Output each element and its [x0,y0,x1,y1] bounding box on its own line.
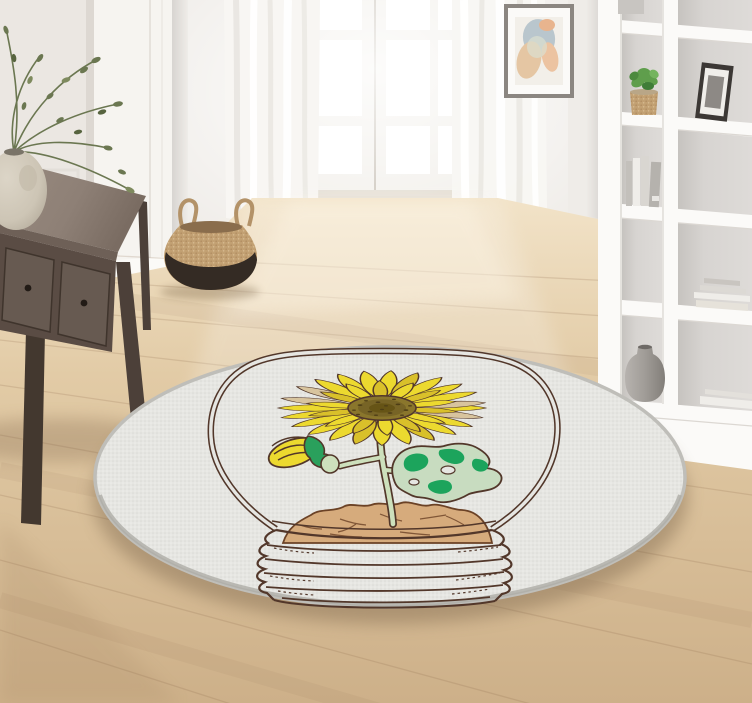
drawer-knob-right [81,300,88,307]
room-scene [0,0,752,703]
shelf-books-vertical [626,156,661,207]
basket-opening [180,221,242,233]
vase-mouth [4,148,24,155]
curtain-left [224,0,320,221]
shelf-top-frame [618,0,644,14]
shelf-divider-stile [662,0,678,406]
shelf-photo-frame [695,62,734,121]
round-rug [92,347,688,624]
drawer-knob-left [25,285,32,292]
shelf-left-stile [598,0,622,430]
scene-svg [0,0,752,703]
framed-abstract-art [506,6,572,96]
shelf-succulent [628,68,661,115]
